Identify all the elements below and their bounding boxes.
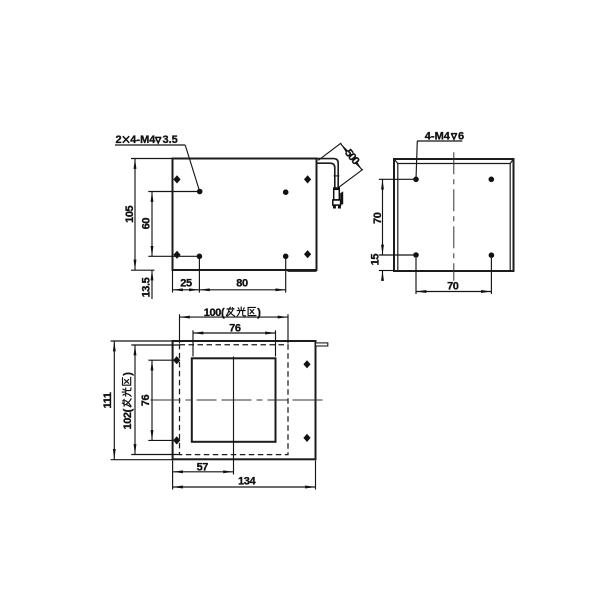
svg-text:4-M4: 4-M4	[130, 134, 156, 146]
svg-text:70: 70	[447, 280, 459, 292]
svg-text:57: 57	[197, 461, 209, 473]
svg-text:80: 80	[236, 278, 248, 290]
svg-text:2: 2	[116, 134, 122, 146]
svg-text:100(: 100(	[204, 307, 225, 319]
svg-text:76: 76	[229, 323, 241, 335]
svg-text:76: 76	[140, 395, 152, 407]
svg-text:134: 134	[238, 476, 256, 488]
svg-text:70: 70	[372, 212, 384, 224]
svg-text:15: 15	[370, 254, 382, 266]
svg-text:105: 105	[124, 205, 136, 222]
svg-text:6: 6	[458, 130, 464, 142]
svg-text:13.5: 13.5	[140, 277, 152, 297]
svg-text:3.5: 3.5	[163, 134, 178, 146]
svg-text:4-M4: 4-M4	[425, 130, 451, 142]
svg-text:102(: 102(	[122, 408, 134, 429]
svg-text:25: 25	[180, 278, 192, 290]
svg-text:111: 111	[102, 392, 114, 408]
svg-text:60: 60	[141, 218, 153, 230]
